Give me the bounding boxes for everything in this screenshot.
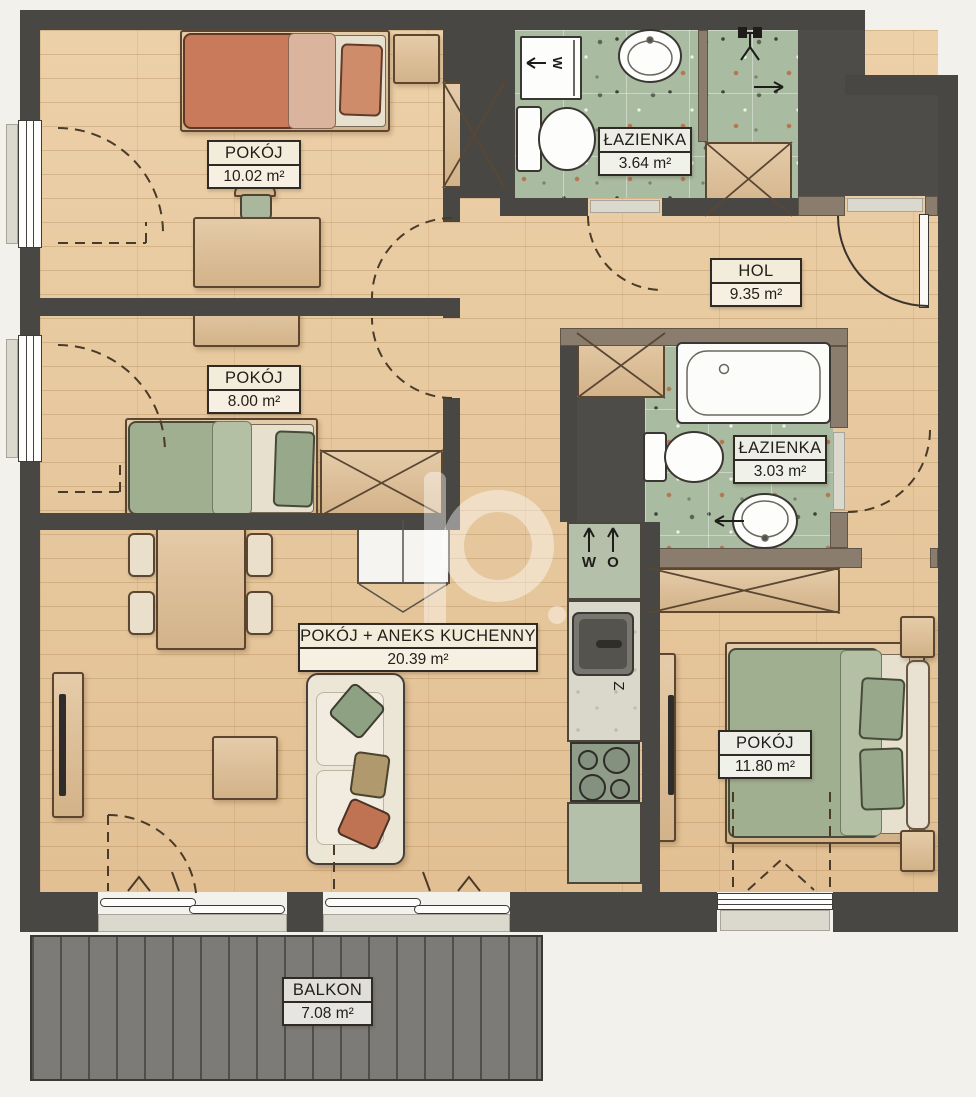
room-name: POKÓJ	[209, 367, 299, 389]
room-area: 7.08 m²	[284, 1001, 371, 1024]
room-label-lazienka-1: ŁAZIENKA 3.64 m²	[598, 127, 692, 176]
kitchen-water-label: W	[580, 554, 598, 574]
bathtub	[677, 343, 830, 423]
arrow-right-icon	[754, 82, 783, 92]
room-name: POKÓJ	[720, 732, 810, 754]
room-name: ŁAZIENKA	[600, 129, 690, 151]
room-area: 3.64 m²	[600, 151, 690, 174]
kitchen-sink-label: Z	[607, 676, 627, 696]
arrow-up-icon	[584, 528, 618, 552]
room-area: 3.03 m²	[735, 459, 825, 482]
room-area: 11.80 m²	[720, 754, 810, 777]
room-name: ŁAZIENKA	[735, 437, 825, 459]
room-area: 9.35 m²	[712, 282, 800, 305]
vent-icon	[739, 28, 761, 60]
room-name: POKÓJ + ANEKS KUCHENNY	[300, 625, 536, 647]
entrance-door-arc	[838, 216, 928, 306]
floor-plan: W W O Z POKÓJ 10.02 m² ŁAZIENKA 3.64 m² …	[0, 0, 976, 1097]
room-area: 20.39 m²	[300, 647, 536, 670]
room-name: POKÓJ	[209, 142, 299, 164]
room-label-pokoj-2: POKÓJ 8.00 m²	[207, 365, 301, 414]
window-tilt-marks	[128, 872, 480, 891]
room-label-pokoj-aneks: POKÓJ + ANEKS KUCHENNY 20.39 m²	[298, 623, 538, 672]
room-label-pokoj-3: POKÓJ 11.80 m²	[718, 730, 812, 779]
room-label-pokoj-1: POKÓJ 10.02 m²	[207, 140, 301, 189]
watermark-dot	[548, 606, 566, 624]
kitchen-drain-label: O	[604, 554, 622, 574]
room-label-balkon: BALKON 7.08 m²	[282, 977, 373, 1026]
washer-label: W	[543, 52, 565, 74]
room-label-hol: HOL 9.35 m²	[710, 258, 802, 307]
watermark-ring	[442, 490, 554, 602]
room-name: BALKON	[284, 979, 371, 1001]
room-label-lazienka-2: ŁAZIENKA 3.03 m²	[733, 435, 827, 484]
room-name: HOL	[712, 260, 800, 282]
room-area: 10.02 m²	[209, 164, 299, 187]
room-area: 8.00 m²	[209, 389, 299, 412]
